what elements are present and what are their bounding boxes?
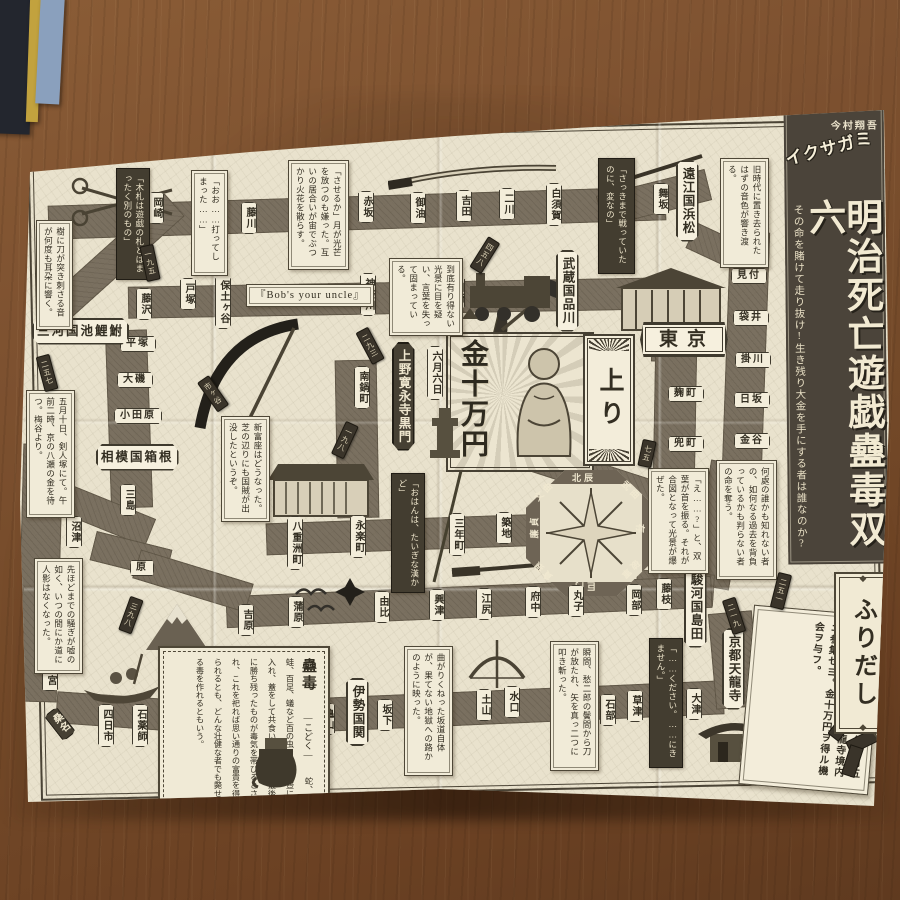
station-plaque: 沼津 [66, 516, 82, 548]
station-plaque: 掛川 [735, 352, 771, 368]
station-plaque: 白須賀 [546, 183, 562, 226]
title-strip: 今村翔吾 イクサガミ 明治死亡遊戯蠱毒双六 その命を賭けて走り抜け!生き残り大金… [784, 107, 889, 564]
station-plaque: 保土ヶ谷 [215, 275, 231, 329]
speech-bubble: 瞬間、愁二郎の鬢間から刀が放たれ、矢を真っ二つに叩き斬った。 [550, 641, 599, 771]
station-plaque: 土山 [476, 689, 492, 721]
speech-bubble: 「さっきまで戦っていたのに、変なの」 [598, 158, 635, 274]
route-band [653, 352, 697, 479]
series-logo: イクサガミ [782, 123, 875, 170]
station-plaque: 御油 [410, 192, 426, 224]
station-plaque: 水口 [504, 686, 520, 718]
station-plaque: 京都天龍寺 [722, 628, 745, 710]
compass-label: 北辰 [572, 471, 596, 484]
station-plaque: 由比 [374, 591, 390, 623]
station-plaque: 原 [130, 560, 154, 576]
station-plaque: 見付 [731, 268, 767, 284]
station-plaque: 坂下 [377, 699, 393, 731]
station-plaque: 小田原 [114, 408, 162, 424]
station-plaque: 東京 [640, 322, 728, 357]
station-plaque: 藤川 [241, 202, 257, 234]
katana-illustration [388, 158, 566, 196]
speech-bubble: 「おお……打ってしまった……」 [191, 170, 228, 276]
speech-bubble: 到底有り得ない光景に目を疑い、言葉を失って固まっている。 [389, 258, 463, 336]
station-plaque: 麹町 [668, 386, 704, 402]
station-plaque: 興津 [429, 589, 445, 621]
station-plaque: 日坂 [734, 392, 770, 408]
station-plaque: 二川 [499, 188, 515, 220]
number-tag: 三九八 [118, 596, 143, 634]
goal-date-plaque: 六月六日 [427, 346, 443, 400]
goal-panel: 上り [583, 334, 635, 466]
station-plaque: 石部 [600, 694, 616, 726]
english-phrase-plaque: 『Bob's your uncle』 [246, 284, 374, 307]
station-plaque: 三年町 [449, 513, 465, 556]
station-plaque: 相模国箱根 [96, 444, 179, 471]
speech-bubble: 「え……?」と、双葉が首を振る。それが合図となって光景が爆ぜた。 [648, 468, 709, 574]
goal-label: 上り [591, 367, 627, 433]
board-title: 明治死亡遊戯蠱毒双六 [805, 198, 883, 565]
station-plaque: 江尻 [476, 588, 492, 620]
mount-fuji-illustration [144, 598, 210, 652]
speech-bubble: 五月十日、剣人塚にて。午前二時、京の八瀬の金を待つ。梅谷より。 [26, 390, 75, 518]
speech-bubble: 曲がりくねった坂道自体が、果てない地獄への路かのように映った。 [404, 646, 453, 776]
station-plaque: 藤沢 [136, 288, 152, 320]
speech-bubble: 新富座はどうなった。芝の辺りにも国賊が出没したというぞ。 [221, 416, 270, 522]
big-dipper-compass: 北辰 武曲 禄存 破軍 巨門 貪狼 廉貞 文曲 [526, 470, 656, 596]
kodoku-title: 蠱毒 [300, 658, 316, 692]
station-plaque: 金谷 [734, 433, 770, 449]
station-plaque: 八重洲町 [287, 516, 303, 570]
station-plaque: 吉田 [456, 190, 472, 222]
compass-label: 廉貞 [528, 514, 541, 538]
speech-bubble: 「させるか」月が光芒を放つのも嫌った。互いの居合いが宙でぶつかり火花を散らす。 [288, 160, 349, 270]
start-label: ふりだし [846, 597, 881, 709]
station-plaque: 四日市 [98, 704, 114, 747]
number-tag: 二五七 [36, 354, 58, 392]
station-plaque: 伊勢国関 [346, 678, 369, 746]
theater-illustration [264, 456, 378, 522]
station-plaque: 袋井 [733, 310, 769, 326]
speech-bubble: 樹に刀が突き刺さる音が何度も耳朶に響く。 [36, 220, 73, 330]
station-plaque: 三島 [120, 484, 136, 516]
kodoku-reading: ―こどく― [303, 713, 313, 760]
station-plaque: 丸子 [568, 585, 584, 617]
station-plaque: 築地 [496, 512, 512, 544]
station-plaque: 草津 [627, 690, 643, 722]
speech-bubble: 旧時代に置き去られたはずの音色が響き渡る。 [720, 158, 769, 268]
speech-bubble: 何處の誰かも知れない者の、如何なる過去を背負っているかも判らない者の命を奪う。 [716, 460, 777, 580]
station-plaque: 岡崎 [148, 192, 164, 224]
poison-jar-illustration [248, 734, 304, 790]
crossbow-illustration [462, 632, 532, 692]
station-plaque: 吉原 [238, 604, 254, 636]
station-plaque: 南鍋町 [354, 366, 370, 409]
buddha-illustration [498, 338, 586, 466]
prize-amount: 金十万円 [458, 339, 486, 459]
station-plaque: 岡部 [626, 584, 642, 616]
station-plaque: 兜町 [668, 436, 704, 452]
station-plaque: 大磯 [117, 372, 153, 388]
station-plaque: 大津 [686, 688, 702, 720]
station-plaque: 赤坂 [358, 191, 374, 223]
steam-locomotive-illustration [462, 268, 570, 324]
station-plaque: 遠江国浜松 [676, 160, 699, 242]
station-plaque: 蒲原 [288, 596, 304, 628]
station-plaque: 戸塚 [180, 278, 196, 310]
station-plaque: 府中 [525, 586, 541, 618]
station-plaque: 舞坂 [653, 183, 669, 215]
station-plaque: 石薬師 [132, 704, 148, 747]
station-plaque: 永楽町 [350, 515, 366, 558]
photo-scene: 京都天龍寺 大津 草津 石部 水口 土山 坂下 伊勢国関 亀山 庄野 石薬師 四… [0, 0, 900, 900]
goal-gate-sign: 上野寛永寺黒門 [392, 342, 415, 451]
station-plaque: 武蔵国品川 [556, 250, 579, 332]
station-plaque: 駿河国島田 [684, 566, 707, 648]
speech-bubble: 先ほどまでの騒ぎが嘘の如く、いつの間にか道に人影はなくなった。 [34, 558, 83, 674]
station-plaque: 藤枝 [656, 578, 672, 610]
quote-banner: 「おはんは、たいぎな漢かど」 [391, 473, 425, 593]
quote-banner: 「……ください。……にきません。」 [649, 638, 683, 768]
kodoku-panel: 蠱毒 ―こどく― 蛇、蛙、百足、蟻など百の虫を一つの壺に入れ、蓋をして共食いをさ… [158, 646, 330, 812]
ferry-boat-illustration [80, 650, 164, 708]
